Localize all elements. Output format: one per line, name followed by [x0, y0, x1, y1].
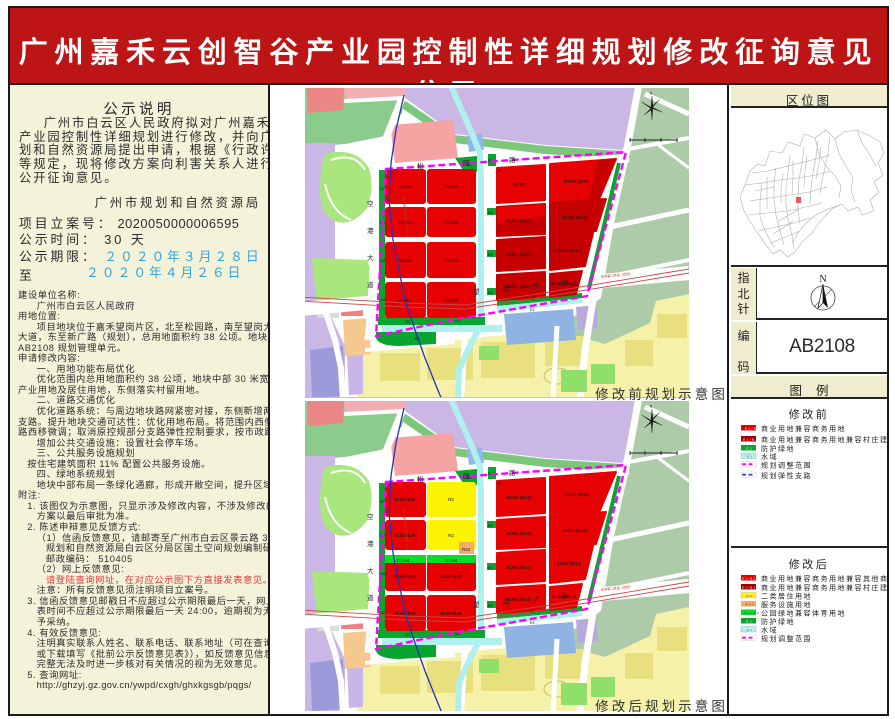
- svg-text:R2: R2: [747, 594, 754, 598]
- svg-text:R2: R2: [448, 533, 454, 538]
- svg-text:E1: E1: [488, 210, 494, 215]
- svg-text:B1/B2 (M14): B1/B2 (M14): [507, 597, 532, 602]
- svg-text:B1/B2/B29: B1/B2/B29: [441, 574, 463, 579]
- svg-text:G2: G2: [405, 319, 411, 324]
- svg-text:E1: E1: [488, 290, 494, 295]
- svg-text:B1/B2 (M14): B1/B2 (M14): [556, 248, 582, 253]
- svg-text:B1/B2: B1/B2: [445, 184, 458, 189]
- svg-text:B1/B2 (M14): B1/B2 (M14): [562, 215, 588, 220]
- svg-text:B1/B2 (M14): B1/B2 (M14): [557, 561, 582, 566]
- svg-text:R2: R2: [448, 497, 454, 502]
- svg-text:B1/B2 (M14): B1/B2 (M14): [507, 565, 532, 570]
- svg-text:G1/A4: G1/A4: [445, 558, 458, 563]
- svg-text:R22: R22: [462, 547, 471, 552]
- svg-text:E1: E1: [488, 523, 494, 528]
- svg-text:公园绿地兼容体育用地: 公园绿地兼容体育用地: [761, 609, 846, 618]
- svg-text:商业用地兼容商务用地兼容村庄建设用地: 商业用地兼容商务用地兼容村庄建设用地: [761, 583, 887, 592]
- svg-text:商业用地兼容商务用地: 商业用地兼容商务用地: [761, 424, 846, 433]
- svg-text:B1/B2 (M14): B1/B2 (M14): [564, 179, 590, 184]
- svg-text:商业用地兼容商务用地兼容村庄建设用地: 商业用地兼容商务用地兼容村庄建设用地: [761, 435, 887, 444]
- svg-text:R22: R22: [746, 603, 756, 607]
- svg-text:规划调整范围: 规划调整范围: [761, 461, 812, 470]
- svg-text:E1: E1: [747, 628, 754, 632]
- svg-text:B1/B2 (M14): B1/B2 (M14): [506, 252, 532, 257]
- svg-text:B1/B2 (M14): B1/B2 (M14): [565, 492, 590, 497]
- svg-text:30: 30: [497, 168, 502, 173]
- svg-text:G2: G2: [746, 620, 753, 624]
- svg-text:E1: E1: [747, 455, 754, 459]
- svg-text:水域: 水域: [761, 452, 778, 461]
- svg-text:二类居住用地: 二类居住用地: [761, 592, 812, 601]
- svg-text:B1/B2: B1/B2: [445, 220, 458, 225]
- svg-text:服务设施用地: 服务设施用地: [761, 600, 812, 609]
- svg-text:E1: E1: [530, 620, 536, 625]
- svg-text:E1: E1: [488, 565, 494, 570]
- svg-text:B1/B2 (M14): B1/B2 (M14): [506, 218, 532, 223]
- svg-text:水域: 水域: [761, 626, 778, 635]
- svg-text:B1/B2: B1/B2: [399, 184, 412, 189]
- svg-text:G2: G2: [746, 447, 753, 451]
- svg-text:B1/B2 (M14): B1/B2 (M14): [507, 531, 532, 536]
- svg-text:B1/B2: B1/B2: [513, 182, 526, 187]
- svg-text:B1/B2/B29: B1/B2/B29: [441, 611, 463, 616]
- svg-text:防护绿地: 防护绿地: [761, 444, 795, 453]
- svg-text:E1: E1: [488, 252, 494, 257]
- svg-text:商业用地兼容商务用地兼容其他商务设施用地: 商业用地兼容商务用地兼容其他商务设施用地: [761, 574, 887, 583]
- svg-text:规划弹性支路: 规划弹性支路: [761, 471, 812, 480]
- svg-text:B1/B2 (M14): B1/B2 (M14): [563, 528, 588, 533]
- svg-text:防护绿地: 防护绿地: [761, 617, 795, 626]
- svg-text:30: 30: [497, 481, 502, 486]
- svg-text:B1/B2: B1/B2: [445, 298, 458, 303]
- svg-text:B1/B2: B1/B2: [745, 427, 761, 431]
- svg-text:N: N: [819, 274, 826, 285]
- svg-text:B1/B2: B1/B2: [445, 258, 458, 263]
- svg-text:G1/A4: G1/A4: [744, 611, 760, 615]
- svg-text:E1: E1: [488, 603, 494, 608]
- svg-text:G2: G2: [405, 632, 411, 637]
- svg-text:B1/B2: B1/B2: [399, 258, 412, 263]
- svg-text:G1/A4: G1/A4: [397, 558, 410, 563]
- svg-text:规划调整范围: 规划调整范围: [761, 634, 812, 643]
- svg-text:B1/B2/B29: B1/B2/B29: [395, 497, 417, 502]
- svg-text:B1/B2 (M14): B1/B2 (M14): [507, 495, 532, 500]
- svg-text:E1: E1: [530, 307, 536, 312]
- svg-text:B1/B2 (M14): B1/B2 (M14): [506, 284, 532, 289]
